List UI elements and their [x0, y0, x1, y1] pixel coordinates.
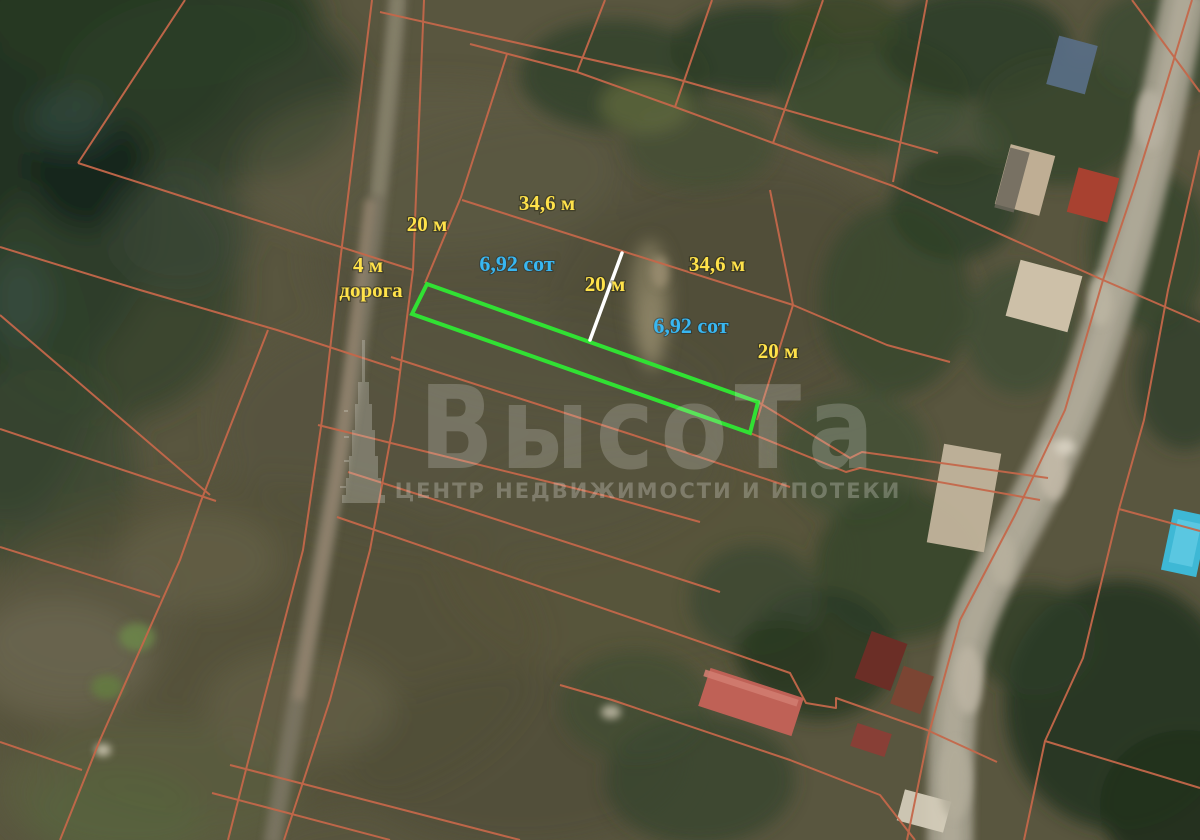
dimension-label: 20 м: [407, 212, 448, 236]
tower-logo-part: [346, 478, 381, 495]
dimension-label: 20 м: [585, 272, 626, 296]
dimension-label: 20 м: [758, 339, 799, 363]
road-width-label: 4 м: [353, 253, 383, 277]
tower-logo-part: [355, 404, 372, 430]
watermark-subtitle-text: ЦЕНТР НЕДВИЖИМОСТИ И ИПОТЕКИ: [395, 479, 902, 503]
ground-patch: [1055, 439, 1075, 455]
tower-logo-part: [344, 410, 348, 412]
tower-logo-part: [358, 382, 369, 404]
cadastral-satellite-map: ВысоТа ЦЕНТР НЕДВИЖИМОСТИ И ИПОТЕКИ 34,6…: [0, 0, 1200, 840]
watermark: ВысоТа ЦЕНТР НЕДВИЖИМОСТИ И ИПОТЕКИ: [340, 340, 901, 503]
satellite-map-image: ВысоТа ЦЕНТР НЕДВИЖИМОСТИ И ИПОТЕКИ 34,6…: [0, 0, 1200, 840]
tower-logo-part: [340, 486, 348, 488]
tree-canopy-blob: [560, 650, 710, 760]
dimension-label: 34,6 м: [689, 252, 745, 276]
tower-logo-part: [352, 430, 375, 456]
ground-patch: [91, 675, 123, 699]
tower-logo-part: [342, 495, 385, 503]
ground-patch: [1136, 90, 1164, 150]
parcel-area-label: 6,92 сот: [479, 251, 554, 276]
tower-logo-part: [344, 460, 350, 462]
terrain-blob: [120, 510, 280, 610]
ground-patch: [939, 740, 971, 820]
parcel-area-label: 6,92 сот: [653, 313, 728, 338]
tower-logo-part: [349, 456, 378, 478]
dimension-label: 34,6 м: [519, 191, 575, 215]
ground-patch: [991, 534, 1015, 586]
road-name-label: дорога: [339, 278, 403, 302]
ground-patch: [954, 646, 982, 714]
watermark-brand-text: ВысоТа: [419, 362, 880, 496]
tree-canopy-blob: [735, 620, 825, 690]
terrain-blob: [110, 170, 250, 290]
terrain-blob: [30, 90, 110, 150]
tower-logo-part: [362, 340, 365, 382]
tower-logo-part: [344, 436, 349, 438]
ground-patch: [601, 705, 621, 719]
